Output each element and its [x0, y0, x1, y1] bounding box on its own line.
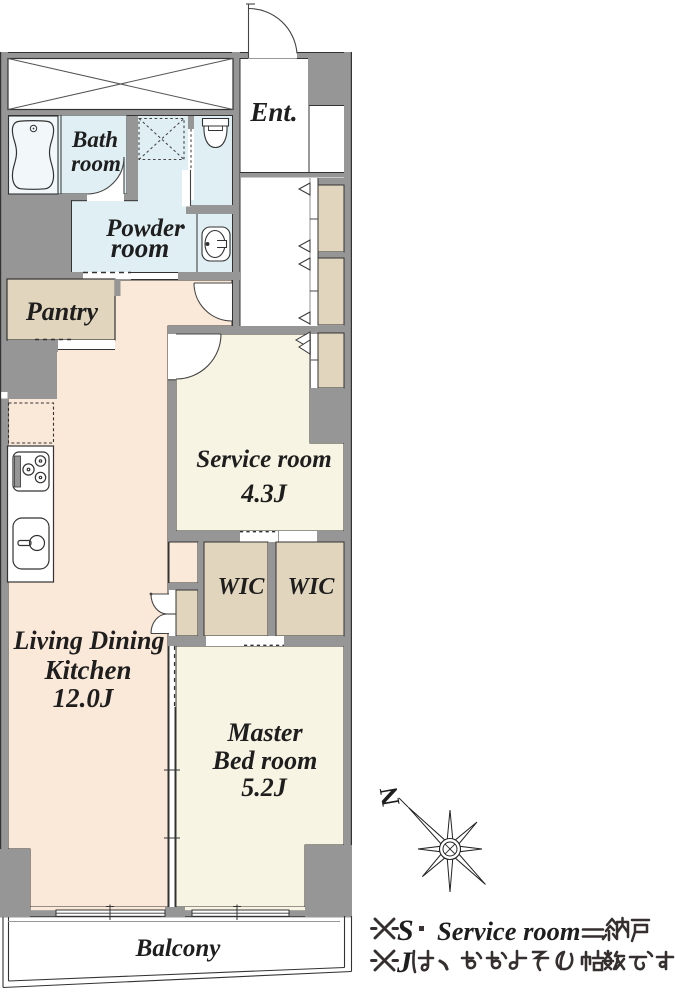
svg-text:room: room — [71, 151, 121, 176]
svg-text:Master: Master — [226, 718, 303, 747]
svg-text:Living Dining: Living Dining — [13, 626, 165, 655]
svg-text:J: J — [396, 946, 413, 979]
svg-text:S: S — [397, 914, 414, 947]
svg-text:Kitchen: Kitchen — [43, 655, 131, 685]
svg-text:Balcony: Balcony — [135, 935, 222, 962]
svg-text:room: room — [111, 233, 170, 263]
svg-text:12.0J: 12.0J — [53, 683, 115, 713]
svg-text:N: N — [374, 784, 406, 808]
svg-text:5.2J: 5.2J — [241, 773, 288, 802]
svg-text:Service room: Service room — [437, 916, 581, 946]
svg-text:WIC: WIC — [218, 574, 266, 600]
svg-text:Bed room: Bed room — [212, 746, 318, 775]
svg-text:4.3J: 4.3J — [240, 479, 288, 508]
svg-text:Pantry: Pantry — [25, 297, 99, 326]
svg-text:WIC: WIC — [288, 574, 336, 600]
svg-text:Bath: Bath — [71, 127, 118, 152]
svg-text:Ent.: Ent. — [249, 97, 297, 127]
svg-text:Service room: Service room — [196, 446, 331, 473]
